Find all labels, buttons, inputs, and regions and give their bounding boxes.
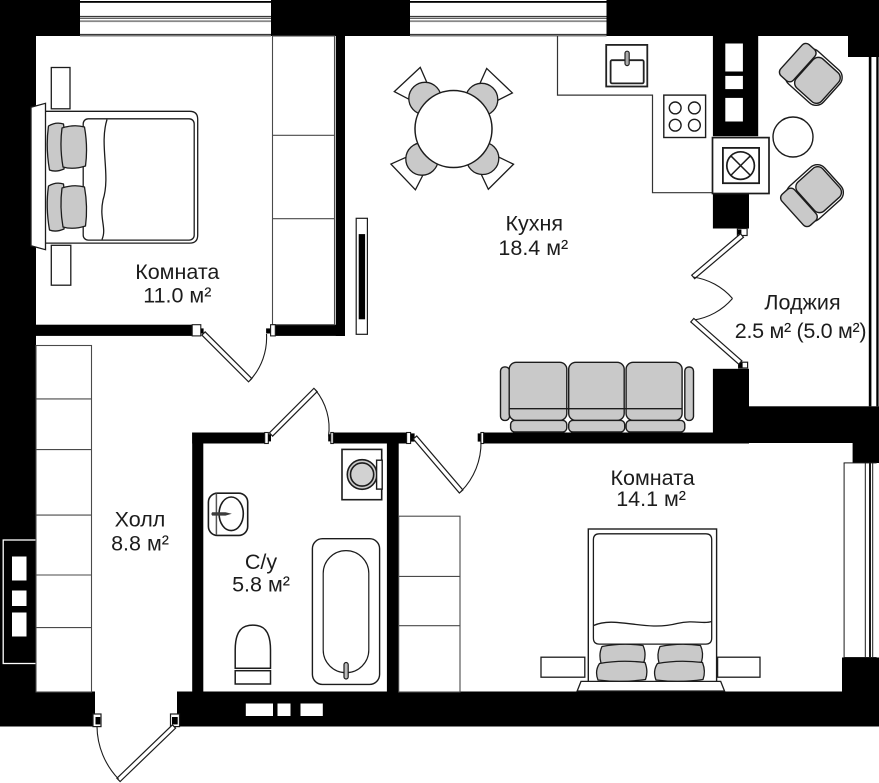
svg-text:11.0 м²: 11.0 м² (143, 283, 211, 307)
svg-text:2.5 м² (5.0 м²): 2.5 м² (5.0 м²) (735, 319, 866, 343)
svg-text:Холл: Холл (115, 508, 166, 532)
svg-text:5.8 м²: 5.8 м² (232, 573, 290, 597)
svg-text:14.1 м²: 14.1 м² (616, 487, 686, 511)
svg-text:18.4 м²: 18.4 м² (498, 236, 568, 260)
svg-text:Комната: Комната (135, 260, 219, 284)
svg-text:Кухня: Кухня (506, 212, 564, 236)
svg-text:8.8 м²: 8.8 м² (111, 532, 169, 556)
svg-text:Лоджия: Лоджия (764, 291, 840, 315)
svg-text:С/у: С/у (245, 550, 278, 574)
